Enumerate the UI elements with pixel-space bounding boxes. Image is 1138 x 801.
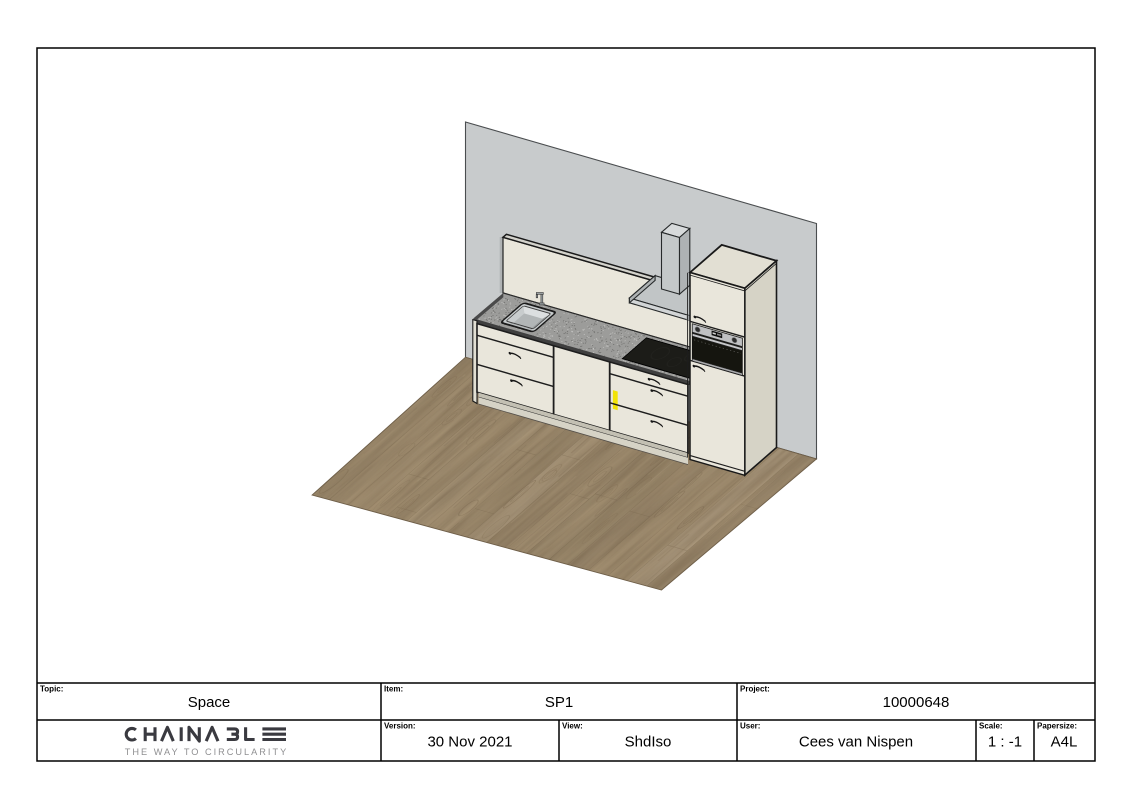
svg-text:Topic:: Topic: — [40, 685, 63, 694]
svg-text:Cees van Nispen: Cees van Nispen — [799, 734, 913, 751]
svg-text:A4L: A4L — [1051, 734, 1078, 751]
svg-text:View:: View: — [562, 722, 583, 731]
svg-text:30 Nov 2021: 30 Nov 2021 — [427, 734, 512, 751]
svg-text:SP1: SP1 — [545, 694, 573, 711]
svg-text:ShdIso: ShdIso — [625, 734, 672, 751]
svg-text:Item:: Item: — [384, 685, 403, 694]
svg-text:THE WAY TO CIRCULARITY: THE WAY TO CIRCULARITY — [125, 747, 288, 757]
svg-text:Version:: Version: — [384, 722, 416, 731]
svg-text:Project:: Project: — [740, 685, 770, 694]
svg-text:Scale:: Scale: — [979, 722, 1003, 731]
svg-text:1 : -1: 1 : -1 — [988, 734, 1022, 751]
svg-text:Papersize:: Papersize: — [1037, 722, 1077, 731]
svg-text:10000648: 10000648 — [883, 694, 950, 711]
svg-text:User:: User: — [740, 722, 760, 731]
svg-text:Space: Space — [188, 694, 231, 711]
